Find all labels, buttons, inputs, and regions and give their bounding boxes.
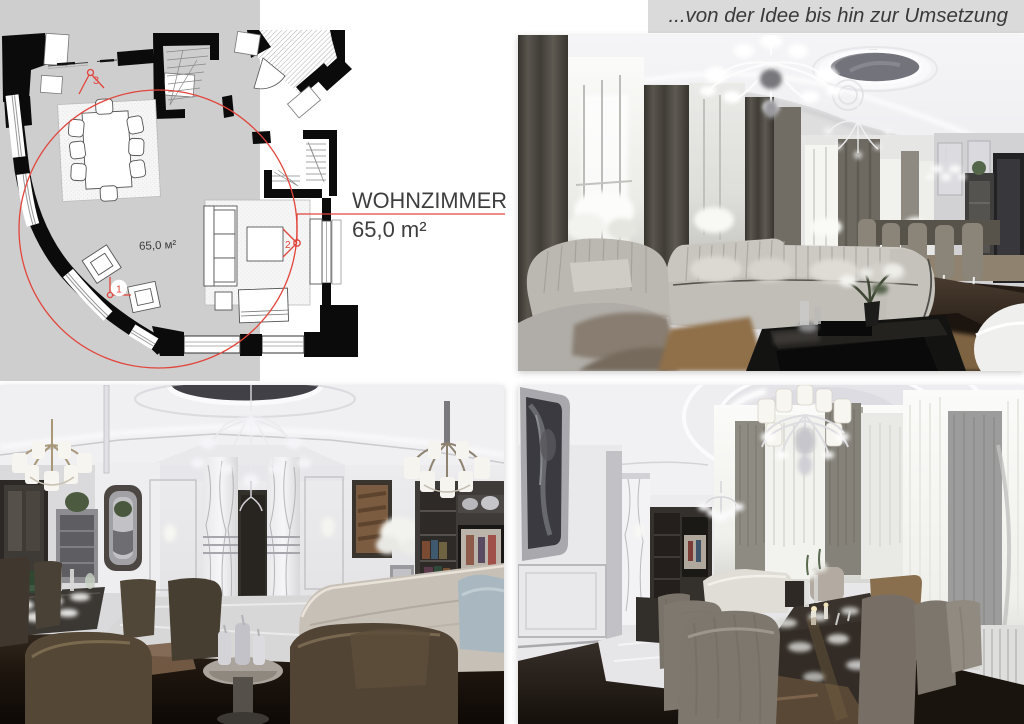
svg-text:2: 2	[285, 240, 291, 251]
svg-text:3: 3	[93, 75, 99, 87]
svg-text:65,0 м²: 65,0 м²	[139, 239, 177, 253]
svg-text:WOHNZIMMER: WOHNZIMMER	[352, 188, 507, 213]
svg-text:1: 1	[116, 284, 122, 296]
svg-text:65,0 m²: 65,0 m²	[352, 217, 427, 242]
